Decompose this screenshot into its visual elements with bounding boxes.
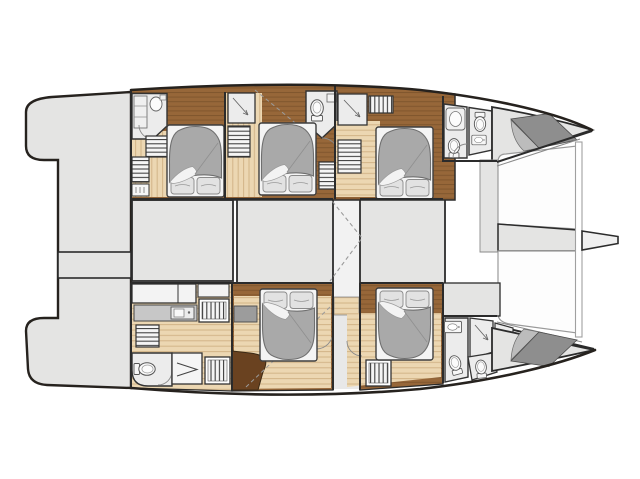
stairs-icon	[136, 325, 159, 347]
deck-block	[443, 283, 500, 316]
wardrobe-shelves-icon	[132, 157, 149, 182]
wardrobe-shelves-icon	[228, 126, 250, 157]
companionway-steps	[334, 297, 359, 315]
trampoline-icon	[498, 251, 577, 333]
deck-block	[132, 200, 233, 281]
aft-crossbeam-icon	[58, 252, 131, 278]
floor-plan-page	[0, 0, 640, 479]
galley-section	[131, 283, 232, 391]
deck-block	[237, 197, 333, 289]
deck-block	[360, 197, 445, 285]
floor-plan-canvas	[0, 0, 640, 479]
locker	[132, 184, 149, 196]
foredeck	[480, 131, 618, 349]
shower-icon	[134, 96, 147, 128]
wardrobe-shelves-icon	[369, 96, 393, 113]
nav-desk	[172, 353, 202, 384]
cabin-fwd-bottom	[347, 283, 443, 390]
forestay-bar	[576, 142, 583, 337]
side-cabinet	[234, 306, 257, 322]
stern-platform	[26, 92, 131, 388]
deck-strip	[480, 160, 498, 252]
galley-cabinet	[132, 284, 196, 303]
stairs-icon	[146, 136, 168, 157]
stairs-icon	[338, 140, 361, 173]
shower-room	[470, 318, 493, 359]
galley-cabinet	[198, 284, 229, 297]
bathrooms-fwd-top	[444, 104, 492, 158]
swim-platform-icon	[26, 92, 131, 388]
wardrobe-shelves-icon	[319, 162, 336, 189]
cabin-mid-bottom	[232, 283, 333, 391]
bowsprit-icon	[582, 231, 618, 250]
